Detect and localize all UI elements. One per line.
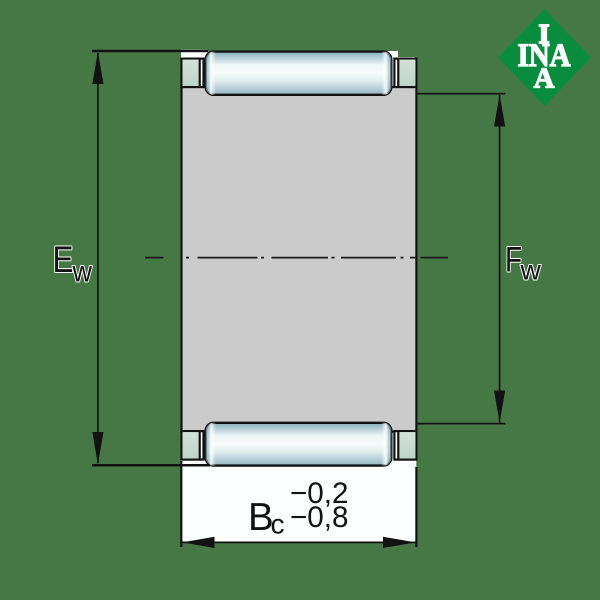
svg-text:F: F — [505, 240, 522, 280]
svg-text:w: w — [520, 255, 542, 286]
svg-text:−0,8: −0,8 — [290, 501, 349, 534]
svg-text:c: c — [271, 509, 285, 540]
svg-text:A: A — [534, 64, 555, 95]
svg-text:w: w — [72, 256, 93, 289]
svg-text:E: E — [53, 238, 74, 280]
